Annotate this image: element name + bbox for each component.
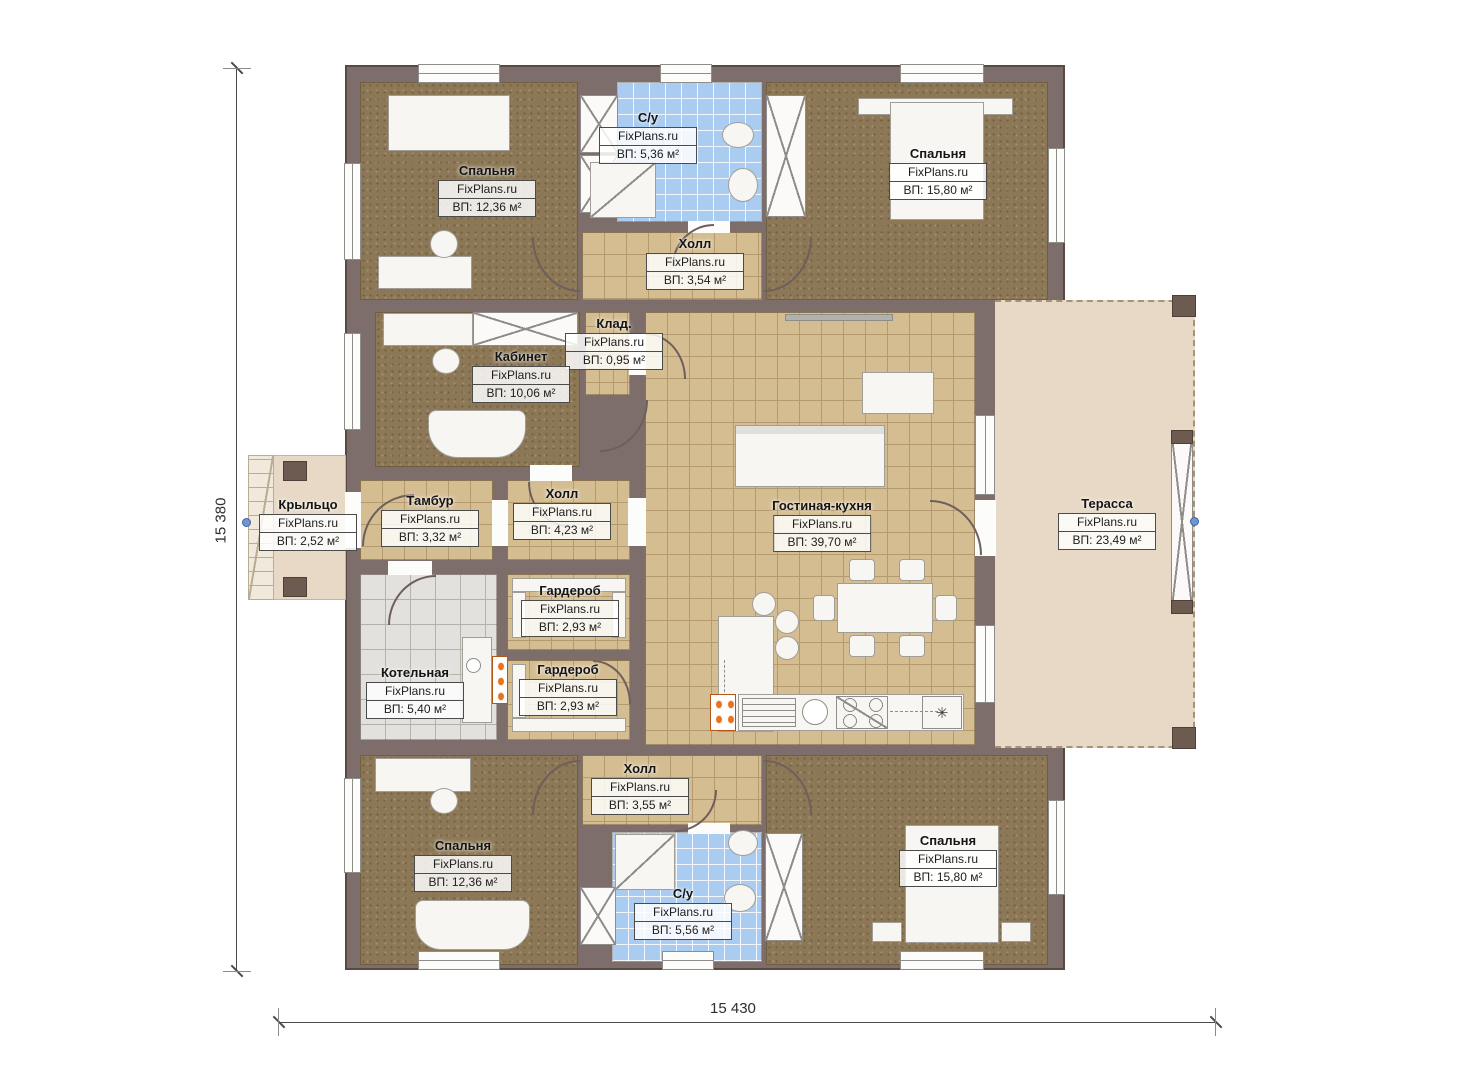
room-brand: FixPlans.ru	[899, 850, 997, 869]
room-brand: FixPlans.ru	[599, 127, 697, 146]
room-label-hall-bottom: Холл FixPlans.ru ВП: 3,55 м²	[591, 761, 689, 815]
toilet-symbol	[722, 122, 754, 148]
room-name: Гардероб	[537, 662, 598, 677]
room-area: ВП: 5,36 м²	[599, 145, 697, 164]
room-brand: FixPlans.ru	[259, 514, 357, 533]
window	[1048, 148, 1065, 243]
room-brand: FixPlans.ru	[381, 510, 479, 529]
dimension-width-label: 15 430	[710, 1000, 756, 1017]
terrace-post-cap-bottom	[1171, 600, 1193, 614]
window	[344, 778, 361, 873]
window	[418, 64, 500, 83]
sink-symbol	[802, 699, 828, 725]
room-brand: FixPlans.ru	[366, 682, 464, 701]
coffee-table-symbol	[862, 372, 934, 414]
room-brand: FixPlans.ru	[565, 333, 663, 352]
room-label-tambour: Тамбур FixPlans.ru ВП: 3,32 м²	[381, 493, 479, 547]
window	[418, 951, 500, 970]
window	[900, 951, 984, 970]
closet-icon	[766, 95, 806, 217]
shower-symbol	[590, 162, 656, 218]
burner-dots	[492, 656, 508, 704]
porch-marker-dot	[242, 518, 251, 527]
dimension-extension	[278, 1008, 279, 1036]
nightstand-symbol	[872, 922, 902, 942]
window	[660, 64, 712, 83]
dimension-line-bottom	[278, 1022, 1215, 1023]
room-area: ВП: 15,80 м²	[889, 181, 987, 200]
room-name: Спальня	[435, 838, 491, 853]
room-label-porch: Крыльцо FixPlans.ru ВП: 2,52 м²	[259, 497, 357, 551]
room-brand: FixPlans.ru	[519, 679, 617, 698]
closet-icon	[473, 312, 578, 346]
room-label-terrace: Терасса FixPlans.ru ВП: 23,49 м²	[1058, 496, 1156, 550]
sofa-symbol	[415, 900, 530, 950]
dimension-line-left	[236, 68, 237, 972]
sofa-symbol	[735, 425, 885, 487]
terrace-marker-dot	[1190, 517, 1199, 526]
stool-symbol	[775, 636, 799, 660]
room-area: ВП: 15,80 м²	[899, 868, 997, 887]
room-name: Спальня	[459, 163, 515, 178]
burner-dots	[710, 694, 736, 731]
chair-symbol	[430, 788, 458, 814]
chair-symbol	[899, 635, 925, 657]
room-area: ВП: 0,95 м²	[565, 351, 663, 370]
chair-symbol	[849, 635, 875, 657]
desk-symbol	[383, 313, 473, 346]
window	[975, 415, 995, 495]
window	[344, 333, 361, 430]
stool-symbol	[775, 610, 799, 634]
room-name: Терасса	[1081, 496, 1133, 511]
door-opening	[628, 498, 646, 546]
room-area: ВП: 2,93 м²	[519, 697, 617, 716]
dimension-extension	[223, 971, 251, 972]
room-area: ВП: 4,23 м²	[513, 521, 611, 540]
room-label-pantry: Клад. FixPlans.ru ВП: 0,95 м²	[565, 316, 663, 370]
room-brand: FixPlans.ru	[889, 163, 987, 182]
shower-symbol	[615, 834, 675, 890]
room-label-bedroom-top-left: Спальня FixPlans.ru ВП: 12,36 м²	[438, 163, 536, 217]
room-name: Спальня	[920, 833, 976, 848]
chair-symbol	[813, 595, 835, 621]
room-name: С/у	[638, 110, 658, 125]
nightstand-symbol	[1001, 922, 1031, 942]
room-label-office: Кабинет FixPlans.ru ВП: 10,06 м²	[472, 349, 570, 403]
room-area: ВП: 5,56 м²	[634, 921, 732, 940]
room-label-bedroom-bottom-left: Спальня FixPlans.ru ВП: 12,36 м²	[414, 838, 512, 892]
desk-symbol	[375, 758, 471, 792]
fridge-symbol: ✳	[922, 696, 962, 729]
room-area: ВП: 39,70 м²	[773, 533, 871, 552]
room-brand: FixPlans.ru	[438, 180, 536, 199]
shelf-symbol	[512, 718, 626, 732]
boiler-unit-symbol	[462, 637, 492, 723]
room-name: Крыльцо	[278, 497, 337, 512]
dishwasher-symbol	[742, 698, 796, 727]
room-name: Спальня	[910, 146, 966, 161]
room-label-hall-middle: Холл FixPlans.ru ВП: 4,23 м²	[513, 486, 611, 540]
room-name: С/у	[673, 886, 693, 901]
boiler-gauge-icon	[466, 658, 481, 673]
room-name: Котельная	[381, 665, 449, 680]
room-label-wardrobe-2: Гардероб FixPlans.ru ВП: 2,93 м²	[519, 662, 617, 716]
room-name: Холл	[546, 486, 579, 501]
window	[1048, 800, 1065, 895]
door-opening	[530, 465, 572, 481]
chair-symbol	[432, 348, 460, 374]
chair-symbol	[849, 559, 875, 581]
floor-plan-canvas: ✳ Спальня FixPlans.ru ВП: 12,36 м² С/у F…	[0, 0, 1474, 1080]
terrace-column-bottom	[1172, 727, 1196, 749]
window	[975, 625, 995, 703]
dimension-extension	[223, 68, 251, 69]
room-area: ВП: 12,36 м²	[414, 873, 512, 892]
room-area: ВП: 12,36 м²	[438, 198, 536, 217]
room-brand: FixPlans.ru	[591, 778, 689, 797]
chair-symbol	[935, 595, 957, 621]
room-label-living-kitchen: Гостиная-кухня FixPlans.ru ВП: 39,70 м²	[772, 498, 872, 552]
room-label-boiler: Котельная FixPlans.ru ВП: 5,40 м²	[366, 665, 464, 719]
window	[662, 951, 714, 970]
room-label-bathroom-top: С/у FixPlans.ru ВП: 5,36 м²	[599, 110, 697, 164]
porch-column-top	[283, 461, 307, 481]
room-area: ВП: 5,40 м²	[366, 700, 464, 719]
room-name: Гардероб	[539, 583, 600, 598]
room-brand: FixPlans.ru	[1058, 513, 1156, 532]
room-brand: FixPlans.ru	[414, 855, 512, 874]
room-label-wardrobe-1: Гардероб FixPlans.ru ВП: 2,93 м²	[521, 583, 619, 637]
room-label-hall-top: Холл FixPlans.ru ВП: 3,54 м²	[646, 236, 744, 290]
chair-symbol	[899, 559, 925, 581]
dining-table-symbol	[837, 583, 933, 633]
window	[344, 163, 361, 260]
washbasin-symbol	[728, 830, 758, 856]
door-opening	[492, 500, 508, 546]
fridge-glyph: ✳	[936, 704, 949, 722]
porch-column-bottom	[283, 577, 307, 597]
tv-console-symbol	[785, 314, 893, 321]
room-label-bedroom-bottom-right: Спальня FixPlans.ru ВП: 15,80 м²	[899, 833, 997, 887]
room-brand: FixPlans.ru	[472, 366, 570, 385]
room-brand: FixPlans.ru	[521, 600, 619, 619]
room-name: Холл	[624, 761, 657, 776]
room-label-bedroom-top-right: Спальня FixPlans.ru ВП: 15,80 м²	[889, 146, 987, 200]
room-area: ВП: 2,52 м²	[259, 532, 357, 551]
closet-icon	[580, 887, 616, 945]
desk-symbol	[378, 256, 472, 289]
window	[900, 64, 984, 83]
room-name: Тамбур	[406, 493, 453, 508]
door-opening	[388, 561, 432, 575]
room-area: ВП: 2,93 м²	[521, 618, 619, 637]
room-area: ВП: 23,49 м²	[1058, 531, 1156, 550]
terrace-post-cap-top	[1171, 430, 1193, 444]
room-name: Кабинет	[495, 349, 548, 364]
room-area: ВП: 3,55 м²	[591, 796, 689, 815]
room-brand: FixPlans.ru	[513, 503, 611, 522]
room-brand: FixPlans.ru	[773, 515, 871, 534]
closet-icon	[765, 833, 803, 941]
dimension-height-label: 15 380	[213, 486, 230, 556]
chair-symbol	[430, 230, 458, 258]
sofa-symbol	[428, 410, 526, 458]
room-area: ВП: 3,32 м²	[381, 528, 479, 547]
washbasin-symbol	[728, 168, 758, 202]
stove-symbol	[836, 696, 888, 729]
dimension-extension	[1215, 1008, 1216, 1036]
room-label-bathroom-bottom: С/у FixPlans.ru ВП: 5,56 м²	[634, 886, 732, 940]
stool-symbol	[752, 592, 776, 616]
room-name: Гостиная-кухня	[772, 498, 872, 513]
bed-symbol	[388, 95, 510, 151]
room-name: Клад.	[596, 316, 631, 331]
terrace-column-top	[1172, 295, 1196, 317]
room-name: Холл	[679, 236, 712, 251]
room-area: ВП: 3,54 м²	[646, 271, 744, 290]
room-brand: FixPlans.ru	[634, 903, 732, 922]
room-area: ВП: 10,06 м²	[472, 384, 570, 403]
room-brand: FixPlans.ru	[646, 253, 744, 272]
